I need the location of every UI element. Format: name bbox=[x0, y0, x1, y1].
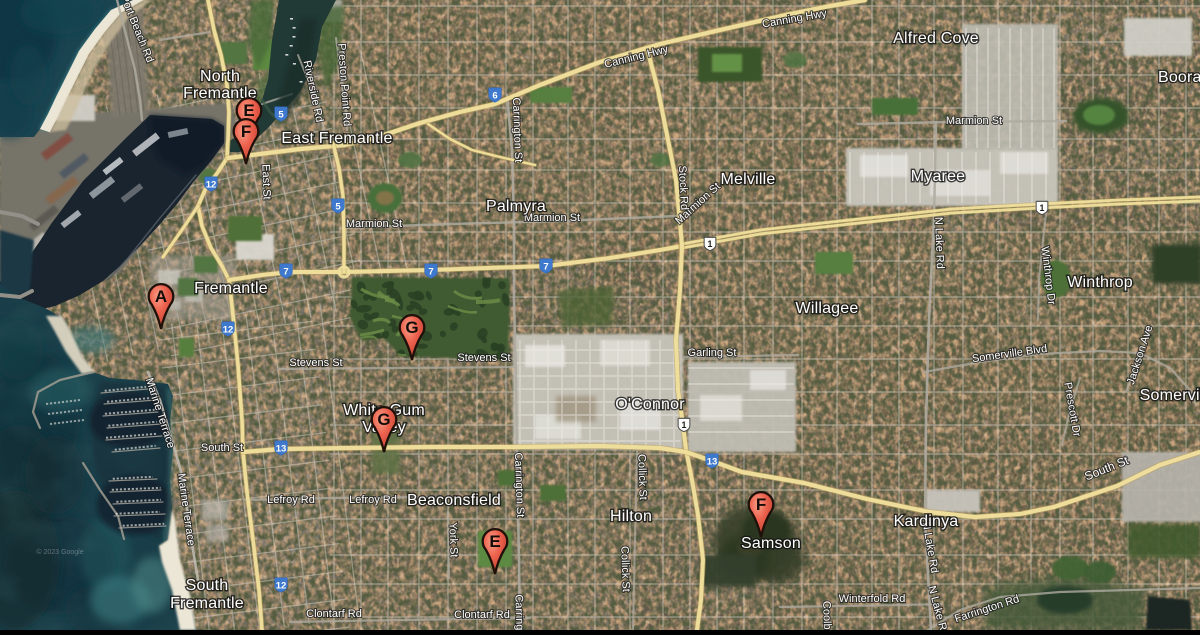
svg-text:Samson: Samson bbox=[741, 535, 801, 552]
svg-text:E: E bbox=[489, 532, 500, 551]
svg-text:1: 1 bbox=[1040, 203, 1045, 213]
svg-text:Carringt: Carringt bbox=[512, 594, 525, 630]
svg-text:5: 5 bbox=[335, 201, 341, 212]
svg-text:East Fremantle: East Fremantle bbox=[281, 130, 392, 147]
svg-text:Fremantle: Fremantle bbox=[170, 595, 244, 612]
svg-text:Clontarf Rd: Clontarf Rd bbox=[306, 608, 362, 620]
svg-text:6: 6 bbox=[492, 90, 497, 101]
svg-text:Stevens St: Stevens St bbox=[289, 357, 342, 369]
svg-text:Lefroy Rd: Lefroy Rd bbox=[267, 494, 315, 506]
svg-text:13: 13 bbox=[707, 456, 718, 467]
svg-text:Alfred Cove: Alfred Cove bbox=[893, 30, 979, 47]
svg-text:Winterfold Rd: Winterfold Rd bbox=[839, 593, 906, 605]
svg-text:1: 1 bbox=[682, 420, 687, 430]
svg-text:G: G bbox=[405, 318, 418, 337]
svg-text:Clontarf Rd: Clontarf Rd bbox=[454, 609, 510, 621]
svg-text:N Lake Rd: N Lake Rd bbox=[932, 217, 946, 269]
svg-text:South St: South St bbox=[201, 442, 243, 454]
svg-text:York St: York St bbox=[446, 522, 459, 557]
svg-text:North: North bbox=[200, 68, 240, 85]
svg-text:Somerville: Somerville bbox=[1140, 387, 1200, 404]
svg-text:Carrington St: Carrington St bbox=[512, 452, 526, 517]
svg-text:1: 1 bbox=[708, 239, 713, 249]
svg-text:East St: East St bbox=[259, 164, 272, 200]
svg-text:12: 12 bbox=[276, 580, 287, 591]
svg-text:Garling St: Garling St bbox=[688, 347, 737, 359]
svg-text:South: South bbox=[186, 577, 229, 594]
svg-text:Palmyra: Palmyra bbox=[486, 198, 546, 215]
svg-text:Fremantle: Fremantle bbox=[194, 280, 268, 297]
svg-text:7: 7 bbox=[283, 266, 288, 277]
svg-text:F: F bbox=[241, 122, 251, 141]
svg-text:13: 13 bbox=[276, 443, 287, 454]
svg-text:A: A bbox=[155, 287, 167, 306]
svg-text:7: 7 bbox=[428, 266, 433, 277]
svg-text:Carrington St: Carrington St bbox=[510, 97, 524, 162]
svg-text:G: G bbox=[377, 410, 390, 429]
svg-text:12: 12 bbox=[223, 324, 234, 335]
svg-text:Kardinya: Kardinya bbox=[894, 513, 959, 530]
svg-text:Marmion St: Marmion St bbox=[346, 218, 402, 230]
svg-text:O'Connor: O'Connor bbox=[615, 396, 685, 413]
svg-text:Stock Rd: Stock Rd bbox=[676, 165, 690, 210]
svg-text:Stevens St: Stevens St bbox=[457, 352, 510, 364]
svg-text:© 2023 Google: © 2023 Google bbox=[36, 548, 83, 556]
svg-text:Myaree: Myaree bbox=[911, 168, 966, 185]
svg-text:F: F bbox=[756, 495, 766, 514]
svg-text:Collick St: Collick St bbox=[618, 546, 632, 592]
svg-text:12: 12 bbox=[206, 179, 217, 190]
svg-text:Marmion St: Marmion St bbox=[946, 115, 1002, 127]
svg-text:Coolbellup: Coolbellup bbox=[820, 601, 834, 630]
svg-text:Collick St: Collick St bbox=[635, 454, 649, 500]
svg-text:E: E bbox=[243, 101, 254, 120]
svg-text:Beaconsfield: Beaconsfield bbox=[407, 492, 501, 509]
svg-text:Winthrop: Winthrop bbox=[1067, 274, 1133, 291]
svg-text:Booragoon: Booragoon bbox=[1158, 69, 1200, 86]
svg-text:Willagee: Willagee bbox=[796, 300, 859, 317]
svg-text:Lefroy Rd: Lefroy Rd bbox=[349, 494, 397, 506]
svg-text:7: 7 bbox=[543, 261, 548, 272]
svg-text:5: 5 bbox=[278, 109, 284, 120]
svg-text:Hilton: Hilton bbox=[610, 508, 652, 525]
svg-text:Melville: Melville bbox=[721, 171, 776, 188]
